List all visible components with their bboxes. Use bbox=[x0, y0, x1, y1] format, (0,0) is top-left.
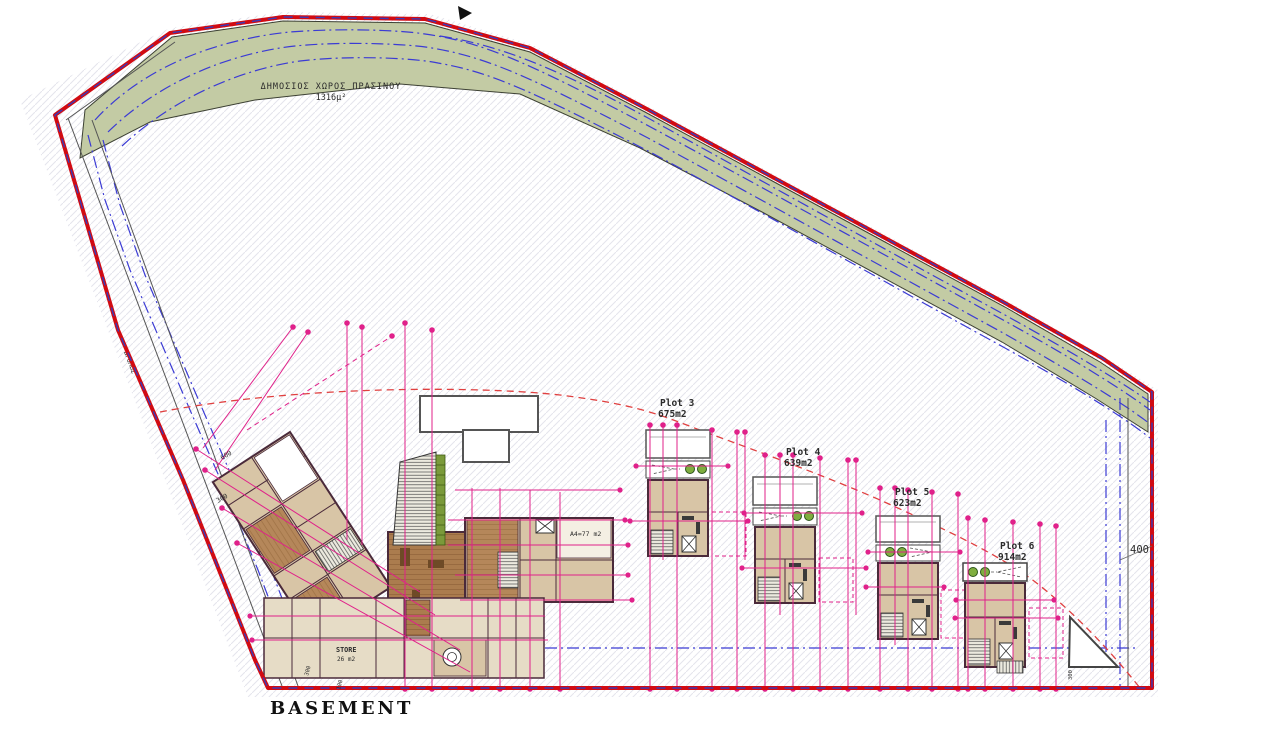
plot-5-area: 623m2 bbox=[893, 498, 922, 509]
green-space-label: ΔΗΜΟΣΙΟΣ ΧΩΡΟΣ ΠΡΑΣΙΝΟΥ bbox=[261, 82, 402, 92]
basement-site-plan: ΔΗΜΟΣΙΟΣ ΧΩΡΟΣ ΠΡΑΣΙΝΟΥ 1316μ² ΔΡΟΜΟΣ bbox=[0, 0, 1280, 735]
plot-3-name: Plot 3 bbox=[660, 398, 695, 409]
villa-plot-3 bbox=[646, 430, 710, 556]
plot-6-area: 914m2 bbox=[998, 552, 1027, 563]
drawing-title: BASEMENT bbox=[270, 698, 413, 719]
villa-plot-4 bbox=[753, 477, 817, 603]
unit-a4-label: A4=77 m2 bbox=[570, 530, 601, 538]
plot-6-name: Plot 6 bbox=[1000, 541, 1035, 552]
site-plan-canvas: ΔΗΜΟΣΙΟΣ ΧΩΡΟΣ ΠΡΑΣΙΝΟΥ 1316μ² ΔΡΟΜΟΣ bbox=[0, 0, 1280, 735]
store-area-label: 26 m2 bbox=[337, 656, 355, 663]
store-label: STORE bbox=[336, 646, 356, 654]
north-arrow-icon bbox=[458, 6, 472, 20]
plot-5-name: Plot 5 bbox=[895, 487, 930, 498]
external-stair bbox=[393, 452, 445, 545]
plot-4-name: Plot 4 bbox=[786, 447, 821, 458]
dim-right-400: 400 bbox=[1130, 544, 1149, 556]
dim-bottom-right-300: 300 bbox=[1068, 670, 1074, 680]
green-space-area-label: 1316μ² bbox=[316, 93, 347, 103]
plot-4-area: 639m2 bbox=[784, 458, 813, 469]
plot-3-area: 675m2 bbox=[658, 409, 687, 420]
